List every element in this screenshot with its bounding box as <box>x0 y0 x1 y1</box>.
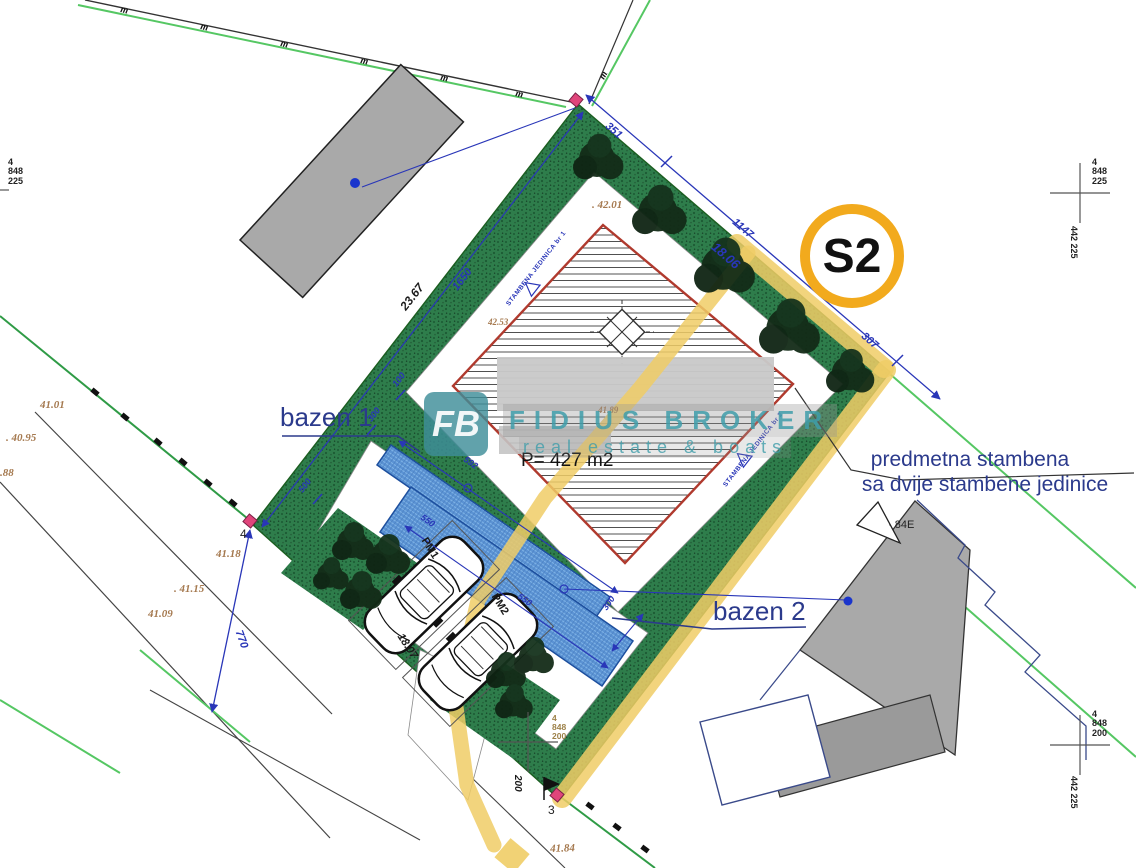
unit-s2-badge-label: S2 <box>823 229 882 284</box>
elevation-40-95: . 40.95 <box>6 433 36 445</box>
elevation-41-01: 41.01 <box>40 400 65 412</box>
house-note-line2: sa dvije stambene jedinice <box>832 474 1136 497</box>
elevation-42-53: 42.53 <box>488 318 508 328</box>
elevation-41-09: 41.09 <box>148 609 173 621</box>
dim-200-vertical: 200 <box>511 775 522 792</box>
neighbor-house-label: · 84E <box>888 520 914 532</box>
watermark-logo-icon: FB <box>424 392 488 456</box>
elevation-41-15: . 41.15 <box>174 584 204 596</box>
grid-coord-bottom-right: 4 848 200 <box>1092 710 1107 738</box>
grid-coord-left: 4 848 225 <box>8 158 23 186</box>
neighbor-building-top-left <box>240 65 463 298</box>
elevation-41-84: 41.84 <box>550 843 575 856</box>
elevation-42-01: . 42.01 <box>592 200 622 212</box>
watermark-tagline: real estate & boats <box>519 437 791 458</box>
grid-easting-top: 442 225 <box>1069 226 1078 259</box>
pool-1-label: bazen 1 <box>280 403 373 431</box>
boundary-point-4-label: 4 <box>240 528 247 541</box>
site-plan-canvas: m m m m m m m 351 1147 18.06 307 1650 10… <box>0 0 1136 868</box>
grid-coord-bottom-center: 4 848 200 <box>552 714 566 741</box>
elevation-40-88: .88 <box>0 468 14 480</box>
fence-symbols: m m m m m m m <box>119 4 610 100</box>
grid-easting-bottom: 442 225 <box>1069 776 1078 809</box>
grid-coord-top-right: 4 848 225 <box>1092 158 1107 186</box>
house-note-line1: predmetna stambena <box>840 449 1100 472</box>
unit-s2-badge: S2 <box>800 204 904 308</box>
pool-2-label: bazen 2 <box>713 597 806 625</box>
elevation-41-18: 41.18 <box>216 549 241 561</box>
boundary-point-3-label: 3 <box>548 804 555 817</box>
neighbor-building-bottom <box>700 695 945 805</box>
watermark-brand: FIDIUS BROKER <box>503 404 837 437</box>
